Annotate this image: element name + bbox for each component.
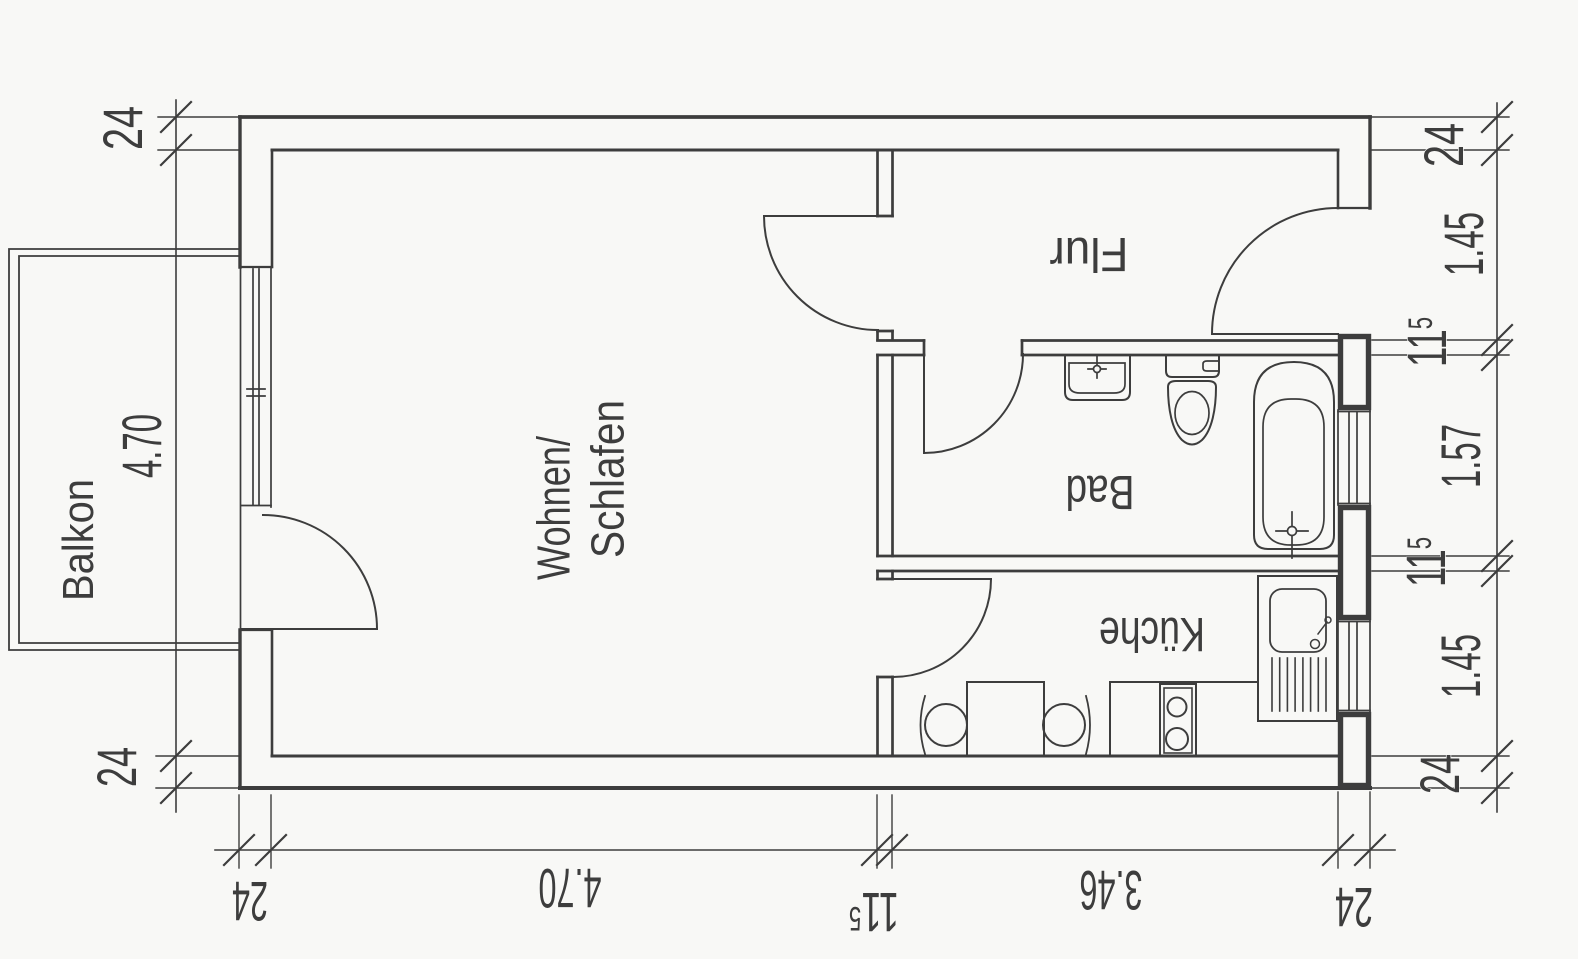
svg-text:Schlafen: Schlafen [582,400,634,558]
svg-text:Flur: Flur [1049,227,1128,280]
svg-text:24: 24 [1335,876,1373,939]
svg-text:4.70: 4.70 [539,857,602,920]
svg-text:Bad: Bad [1066,465,1135,518]
svg-text:Balkon: Balkon [54,479,103,601]
svg-text:24: 24 [85,747,148,787]
svg-text:Wohnen/: Wohnen/ [528,436,580,580]
svg-text:1.45: 1.45 [1429,634,1492,698]
svg-text:24: 24 [91,106,154,150]
svg-text:1.57: 1.57 [1429,424,1492,488]
svg-text:24: 24 [232,870,268,933]
svg-text:3.46: 3.46 [1080,859,1143,922]
svg-text:115: 115 [1394,537,1457,587]
svg-text:115: 115 [1395,317,1458,367]
svg-text:24: 24 [1412,123,1475,167]
svg-text:24: 24 [1408,754,1471,794]
svg-text:Küche: Küche [1099,607,1205,660]
svg-text:115: 115 [849,881,899,944]
svg-text:1.45: 1.45 [1432,212,1495,276]
svg-text:4.70: 4.70 [110,414,173,478]
